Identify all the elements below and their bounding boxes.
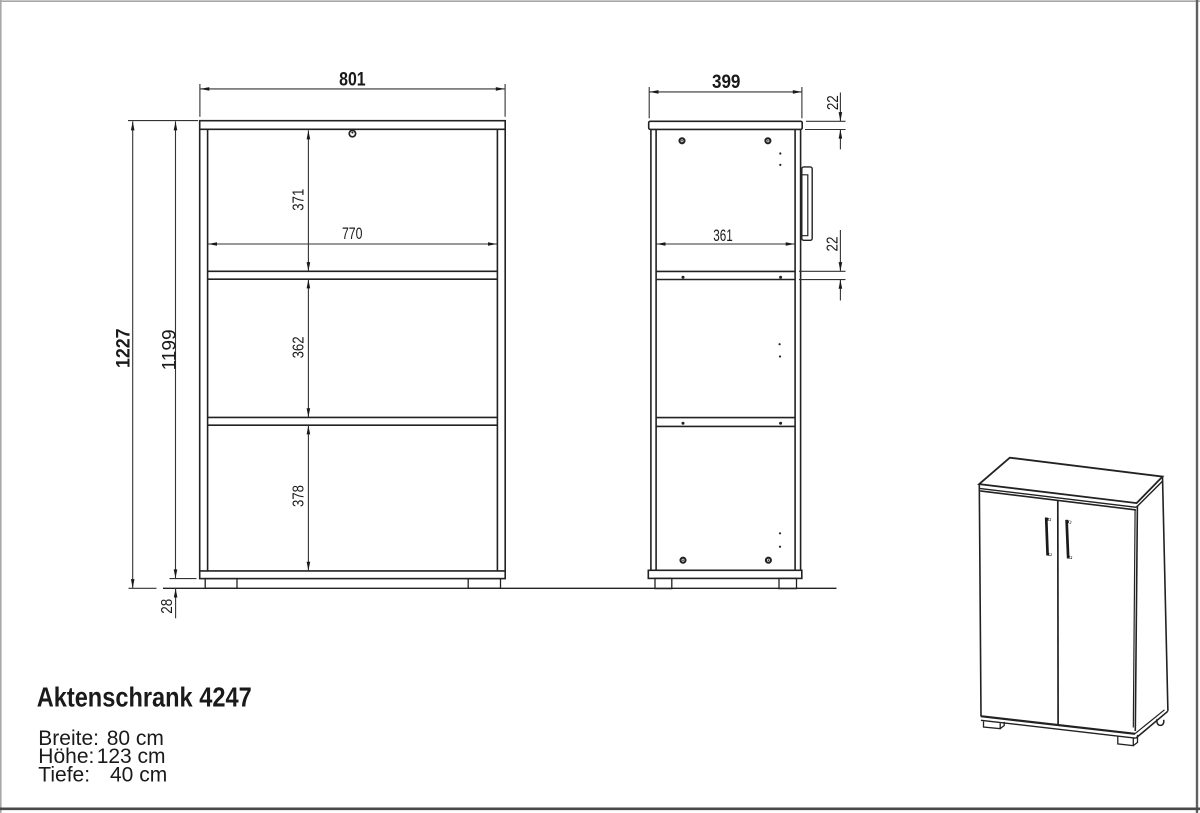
svg-text:399: 399	[712, 72, 741, 93]
svg-text:361: 361	[713, 226, 733, 245]
svg-text:362: 362	[291, 336, 308, 358]
svg-text:Aktenschrank 4247: Aktenschrank 4247	[37, 682, 252, 713]
svg-text:22: 22	[825, 95, 842, 110]
svg-text:40 cm: 40 cm	[110, 763, 167, 786]
svg-text:371: 371	[291, 189, 308, 211]
svg-text:28: 28	[159, 599, 176, 614]
svg-text:770: 770	[342, 225, 363, 243]
svg-text:1199: 1199	[158, 329, 180, 370]
svg-text:Tiefe:: Tiefe:	[38, 763, 90, 786]
svg-text:1227: 1227	[113, 329, 135, 369]
svg-text:801: 801	[339, 70, 366, 91]
svg-text:378: 378	[291, 485, 308, 507]
svg-text:22: 22	[825, 237, 842, 252]
